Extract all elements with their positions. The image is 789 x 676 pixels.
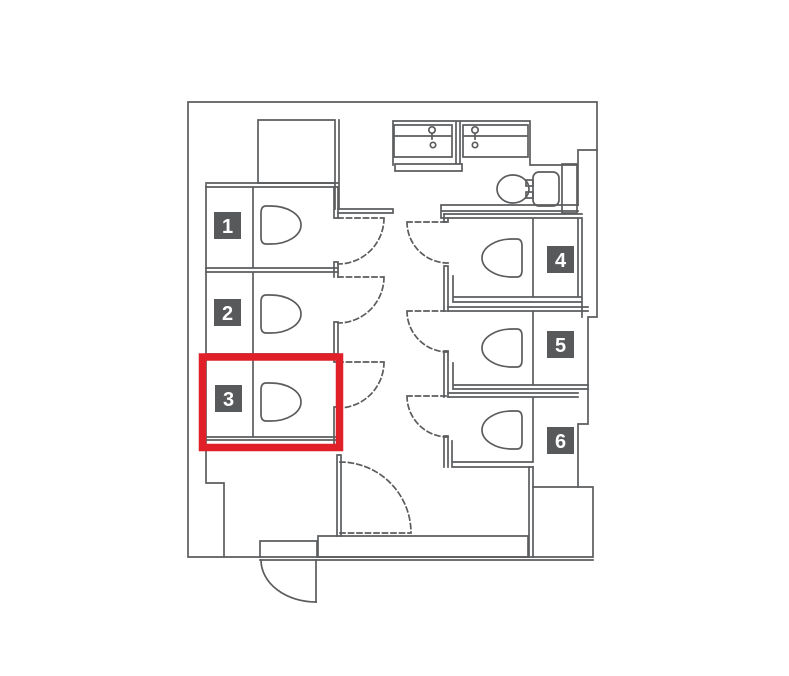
toilet-icon-stall-3: [261, 383, 301, 421]
restroom-floorplan: 1 2 3 4 5 6: [0, 0, 789, 676]
stall-badge-4-label: 4: [555, 250, 567, 272]
stall-5-door-swing: [407, 311, 448, 352]
stall-badge-6-label: 6: [555, 431, 566, 453]
door-swing-arcs: [338, 218, 448, 533]
corridor-left-wall: [337, 455, 341, 536]
stall-badge-5[interactable]: 5: [547, 331, 574, 358]
entrance-door-frame: [260, 541, 317, 557]
faucet-icon: [429, 127, 435, 133]
stall-6-door-swing: [407, 396, 448, 437]
stall-1-door-swing: [338, 218, 384, 264]
outer-walls: [188, 102, 597, 557]
stall-badge-1-label: 1: [222, 216, 233, 238]
stall-badge-2[interactable]: 2: [214, 299, 241, 326]
sink-counter-2: [463, 125, 528, 157]
stall-3-door-swing: [338, 362, 384, 408]
corridor-door-swing: [340, 462, 411, 533]
toilet-icon-stall-2: [261, 295, 301, 333]
faucet-icon: [472, 127, 478, 133]
stall-4-door-swing: [407, 222, 448, 263]
alcove-bottom-wall: [441, 205, 578, 218]
entrance-door-arc: [261, 560, 316, 602]
left-inner-wall: [206, 185, 224, 557]
floorplan-canvas: 1 2 3 4 5 6: [0, 0, 789, 676]
stall-badge-2-label: 2: [222, 303, 233, 325]
entrance-door: [260, 541, 317, 602]
sink-counter-1: [394, 125, 452, 157]
stall-2-door-swing: [338, 277, 384, 323]
threshold-step: [318, 467, 533, 557]
drain-icon: [430, 142, 435, 147]
toilet-icon-stall-6: [482, 411, 522, 449]
stall-badge-3-label: 3: [223, 389, 234, 411]
drain-icon: [472, 142, 477, 147]
duct-closet: [258, 120, 339, 209]
plan-lines: [188, 102, 597, 602]
toilet-icon-stall-1: [261, 206, 301, 244]
sink-area-walls: [393, 121, 597, 205]
stall-badge-6[interactable]: 6: [547, 427, 574, 454]
corridor-stub-wall: [338, 209, 393, 213]
stall-badge-3[interactable]: 3: [215, 385, 242, 412]
stall-badge-1[interactable]: 1: [214, 212, 241, 239]
stall-badge-5-label: 5: [555, 335, 566, 357]
toilet-icon-stall-4: [482, 239, 522, 277]
stall-badge-4[interactable]: 4: [547, 246, 574, 273]
toilet-icon-stall-5: [482, 329, 522, 367]
right-stall-front-wall: [444, 214, 448, 467]
